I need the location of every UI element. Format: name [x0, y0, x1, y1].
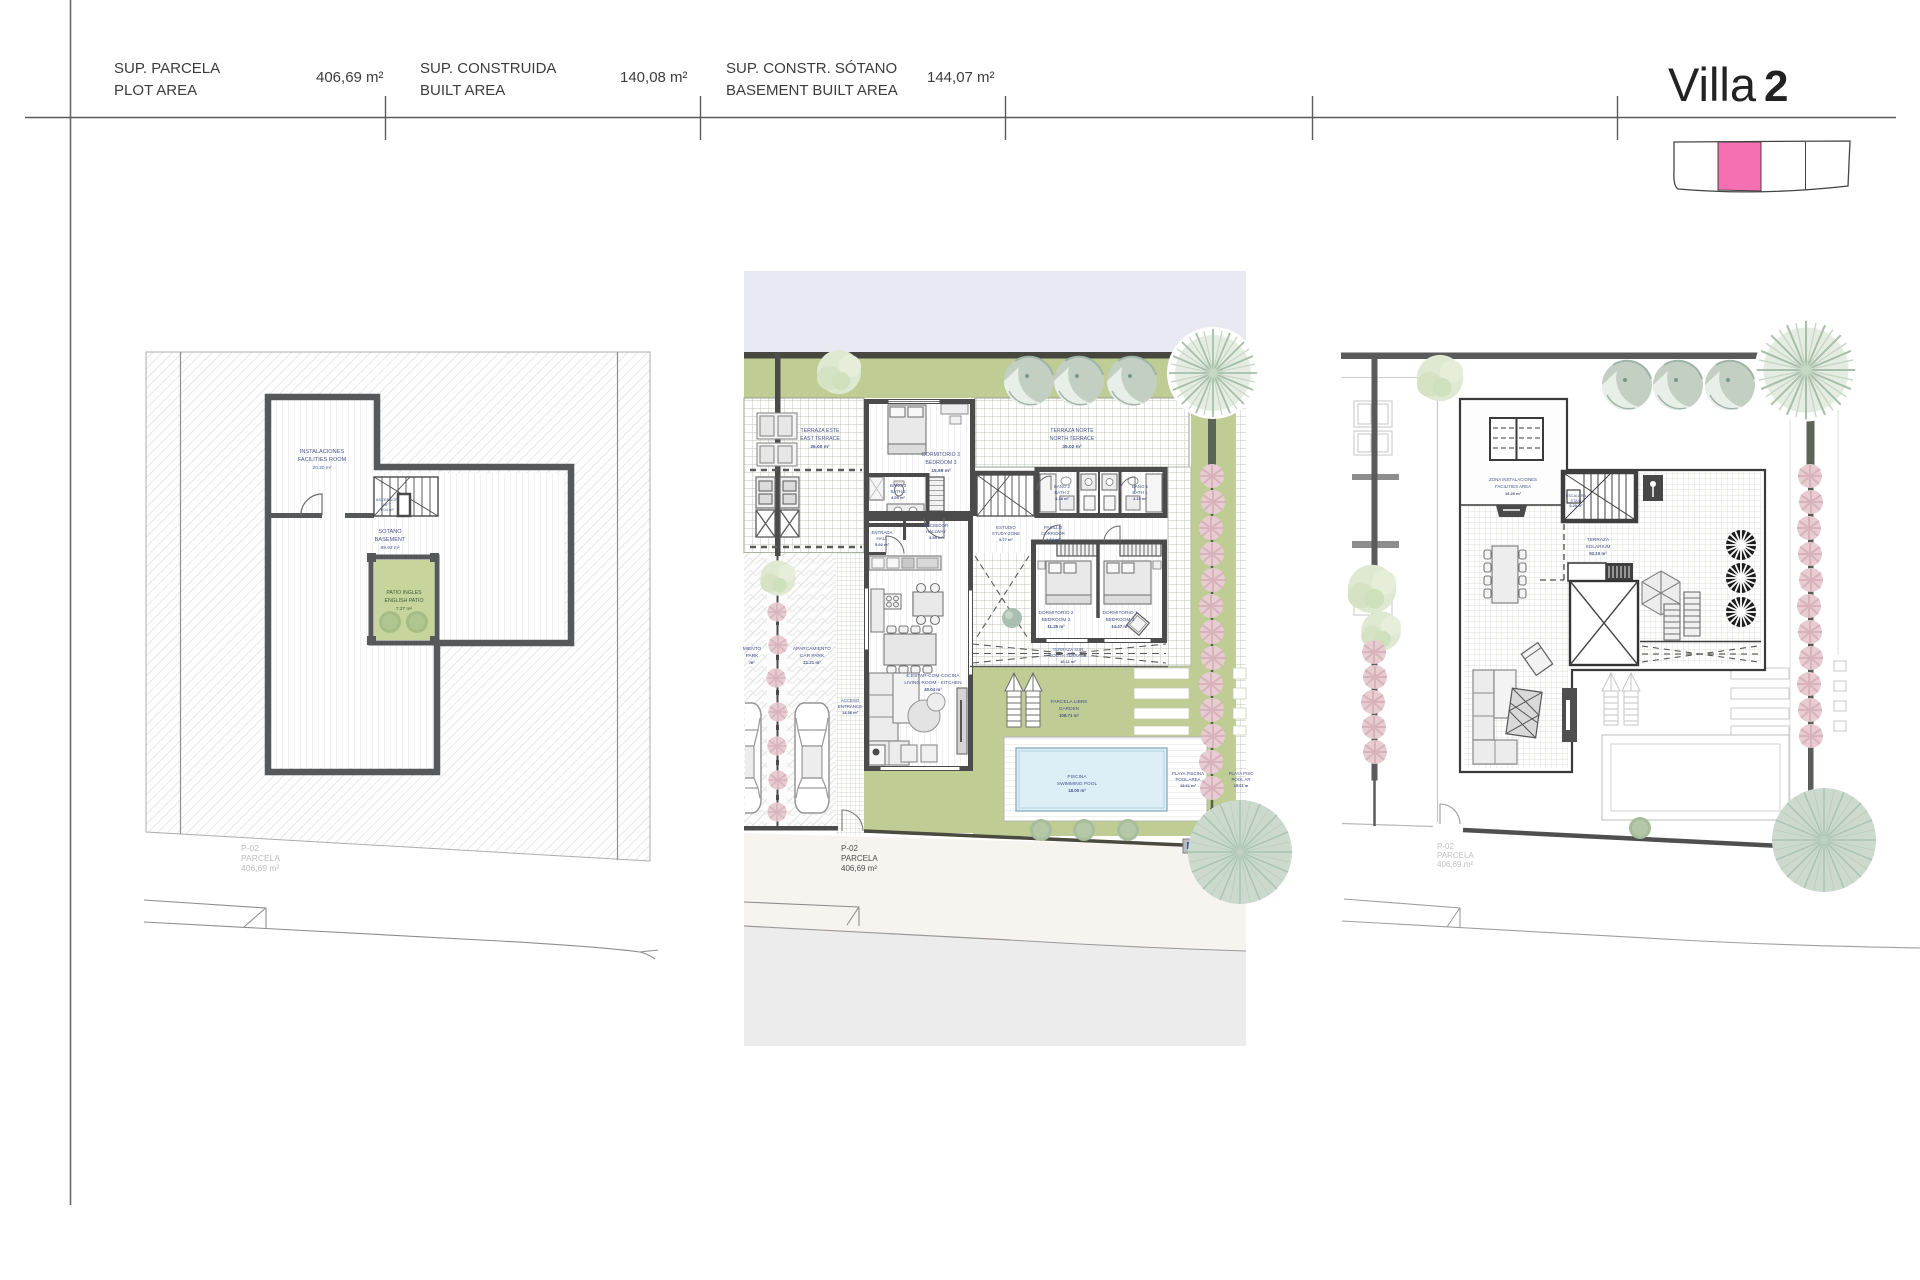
svg-text:TERRAZA NORTE: TERRAZA NORTE — [1050, 428, 1094, 434]
svg-text:35.02 m²: 35.02 m² — [1062, 444, 1082, 450]
svg-text:E.ESTAR-COM-COCINA: E.ESTAR-COM-COCINA — [906, 673, 960, 679]
svg-text:ENGLISH PATIO: ENGLISH PATIO — [384, 598, 423, 604]
svg-text:P-02: P-02 — [841, 844, 858, 853]
svg-text:BAÑO 3: BAÑO 3 — [890, 483, 907, 488]
svg-text:93.10 m²: 93.10 m² — [1589, 551, 1607, 556]
svg-text:EAST TERRACE: EAST TERRACE — [800, 436, 840, 442]
svg-text:BASEMENT: BASEMENT — [375, 537, 406, 543]
svg-text:14.36 m²: 14.36 m² — [842, 710, 859, 715]
svg-text:PLAYA PISC: PLAYA PISC — [1229, 771, 1254, 776]
svg-text:11.25 m²: 11.25 m² — [1047, 624, 1065, 629]
svg-text:16.20 m²: 16.20 m² — [1505, 491, 1522, 496]
svg-text:14.47 m²: 14.47 m² — [1111, 624, 1129, 629]
svg-text:406,69 m²: 406,69 m² — [316, 69, 384, 86]
svg-text:406,69 m²: 406,69 m² — [1437, 860, 1473, 869]
svg-text:SUP. CONSTRUIDA: SUP. CONSTRUIDA — [420, 60, 556, 77]
svg-text:BEDROOM 3: BEDROOM 3 — [925, 460, 956, 466]
svg-text:GARDEN: GARDEN — [1059, 706, 1080, 712]
svg-text:89.93 m²: 89.93 m² — [381, 545, 400, 551]
svg-text:1.04 m²: 1.04 m² — [380, 507, 394, 512]
svg-text:BATH 2: BATH 2 — [1054, 490, 1070, 495]
svg-text:TERRAZA SUR: TERRAZA SUR — [1053, 647, 1084, 652]
svg-text:4.18 m²: 4.18 m² — [1055, 496, 1069, 501]
svg-text:BASEMENT BUILT AREA: BASEMENT BUILT AREA — [726, 82, 898, 99]
svg-text:CAR PARK: CAR PARK — [800, 653, 825, 659]
svg-text:BAÑO 1: BAÑO 1 — [1132, 484, 1149, 489]
svg-text:RECIBIDOR: RECIBIDOR — [924, 523, 948, 528]
svg-text:1.84 m²: 1.84 m² — [1046, 537, 1060, 542]
svg-text:406,69 m²: 406,69 m² — [841, 864, 877, 873]
svg-text:CORRIDOR: CORRIDOR — [1041, 531, 1065, 536]
svg-text:PARCELA LIBRE: PARCELA LIBRE — [1051, 699, 1088, 705]
svg-text:5.77 m²: 5.77 m² — [999, 537, 1013, 542]
svg-text:PLOT AREA: PLOT AREA — [114, 82, 197, 99]
svg-text:BATH 1: BATH 1 — [1132, 490, 1148, 495]
svg-text:PARCELA: PARCELA — [1437, 851, 1474, 860]
svg-text:PLAYA PISCINA: PLAYA PISCINA — [1172, 771, 1204, 776]
svg-text:P-02: P-02 — [1437, 842, 1454, 851]
svg-text:SOTANO: SOTANO — [378, 529, 402, 535]
svg-text:BATH 3: BATH 3 — [890, 489, 906, 494]
svg-text:406,69 m²: 406,69 m² — [241, 863, 279, 873]
svg-text:15.61 m²: 15.61 m² — [1180, 783, 1197, 788]
svg-text:PATIO INGLES: PATIO INGLES — [386, 590, 422, 596]
svg-text:SOUTH TERRACE: SOUTH TERRACE — [1049, 653, 1087, 658]
svg-text:BUILT AREA: BUILT AREA — [420, 82, 505, 99]
svg-text:ENTRANCE: ENTRANCE — [838, 704, 862, 709]
svg-text:ENTRADA: ENTRADA — [872, 530, 893, 535]
svg-text:FACILITIES ROOM: FACILITIES ROOM — [298, 457, 347, 463]
svg-text:6.20 m²: 6.20 m² — [1569, 504, 1583, 508]
svg-text:FACILITIES AREA: FACILITIES AREA — [1495, 484, 1531, 489]
svg-text:BEDROOM 1: BEDROOM 1 — [1106, 617, 1135, 623]
svg-text:ESCALERA: ESCALERA — [1566, 494, 1587, 498]
svg-text:7.27 m²: 7.27 m² — [396, 606, 413, 612]
svg-text:DORMITORIO 1: DORMITORIO 1 — [1102, 610, 1137, 616]
svg-text:BEDROOM 2: BEDROOM 2 — [1042, 617, 1071, 623]
svg-text:21.21 m²: 21.21 m² — [803, 660, 821, 665]
svg-text:4.05 m²: 4.05 m² — [891, 495, 905, 500]
svg-text:5.92 m²: 5.92 m² — [875, 542, 889, 547]
svg-text:BAÑO 2: BAÑO 2 — [1054, 484, 1071, 489]
svg-text:Villa: Villa — [1668, 58, 1757, 111]
svg-text:DORMITORIO 2: DORMITORIO 2 — [1038, 610, 1073, 616]
svg-text:HALLWAY: HALLWAY — [926, 529, 946, 534]
svg-text:PARK: PARK — [746, 653, 760, 659]
svg-text:140,08 m²: 140,08 m² — [620, 69, 688, 86]
svg-text:108.71 m²: 108.71 m² — [1059, 713, 1080, 718]
svg-text:2: 2 — [1764, 62, 1788, 111]
svg-text:STAIR: STAIR — [1571, 499, 1582, 503]
svg-text:DORMITORIO 3: DORMITORIO 3 — [922, 452, 960, 458]
svg-text:APARCAMIENTO: APARCAMIENTO — [793, 646, 831, 652]
svg-text:POOL AR: POOL AR — [1231, 777, 1250, 782]
svg-text:SOLARIUM: SOLARIUM — [1585, 544, 1610, 550]
svg-text:SUP. CONSTR. SÓTANO: SUP. CONSTR. SÓTANO — [726, 60, 897, 77]
svg-text:15.99 m²: 15.99 m² — [931, 468, 951, 474]
svg-text:3.59 m²: 3.59 m² — [929, 535, 943, 540]
svg-text:MIENTO: MIENTO — [743, 646, 762, 652]
svg-text:HALL: HALL — [877, 536, 889, 541]
svg-text:INSTALACIONES: INSTALACIONES — [300, 449, 345, 455]
svg-text:ESTUDIO: ESTUDIO — [996, 525, 1016, 530]
svg-text:STUDY ZONE: STUDY ZONE — [992, 531, 1020, 536]
svg-text:P-02: P-02 — [241, 843, 259, 853]
svg-text:LIVING ROOM - KITCHEN: LIVING ROOM - KITCHEN — [904, 680, 962, 686]
svg-text:144,07 m²: 144,07 m² — [927, 69, 995, 86]
svg-text:16.11 m²: 16.11 m² — [1060, 659, 1076, 664]
svg-text:40.04 m²: 40.04 m² — [924, 687, 942, 692]
svg-text:NORTH TERRACE: NORTH TERRACE — [1050, 436, 1095, 442]
svg-text:ACCESO: ACCESO — [841, 698, 860, 703]
svg-text:TERRAZA: TERRAZA — [1587, 537, 1610, 543]
svg-text:SWIMMING POOL: SWIMMING POOL — [1057, 781, 1098, 787]
svg-text:20.20 m²: 20.20 m² — [313, 465, 332, 471]
svg-text:POOL AREA: POOL AREA — [1176, 777, 1201, 782]
svg-text:m²: m² — [749, 660, 755, 665]
svg-text:4.19 m²: 4.19 m² — [1133, 496, 1147, 501]
svg-text:PARCELA: PARCELA — [841, 854, 878, 863]
svg-text:18.00 m²: 18.00 m² — [1068, 788, 1086, 793]
svg-text:PASILLO: PASILLO — [1044, 525, 1063, 530]
svg-text:TERRAZA ESTE: TERRAZA ESTE — [801, 428, 840, 434]
svg-text:PARCELA: PARCELA — [241, 853, 280, 863]
svg-text:15.61 m: 15.61 m — [1234, 783, 1249, 788]
svg-text:26.00 m²: 26.00 m² — [810, 444, 830, 450]
svg-text:SUP. PARCELA: SUP. PARCELA — [114, 60, 220, 77]
svg-text:PISCINA: PISCINA — [1067, 774, 1087, 780]
svg-text:ZONA INSTALACIONES: ZONA INSTALACIONES — [1489, 477, 1537, 482]
